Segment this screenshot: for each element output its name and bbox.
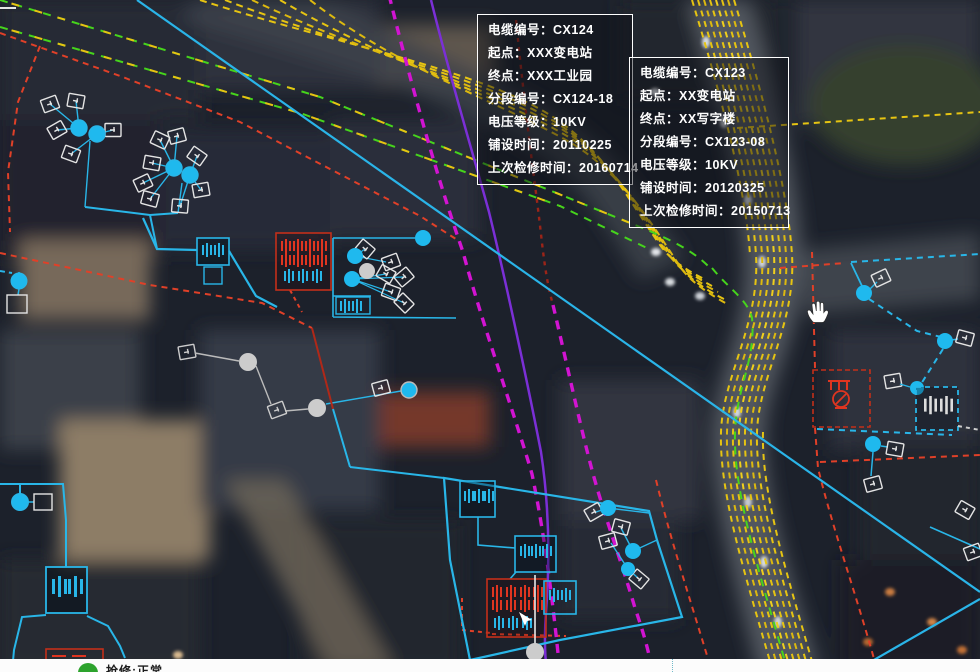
cable-node[interactable] <box>12 494 28 510</box>
info-row: 铺设时间：20110225 <box>488 134 624 157</box>
telemetry-node-gray[interactable] <box>239 353 257 371</box>
cable-node[interactable] <box>344 271 360 287</box>
legend-label: 抢修:正常 <box>106 662 163 672</box>
cable-node[interactable] <box>182 167 198 183</box>
telemetry-node-gray[interactable] <box>308 399 326 417</box>
legend-separator <box>672 659 673 672</box>
info-row: 电压等级：10KV <box>488 111 624 134</box>
status-dot <box>78 663 98 672</box>
info-row: 上次检修时间：20160714 <box>488 157 624 180</box>
cable-node[interactable] <box>621 562 635 576</box>
cable-node[interactable] <box>89 126 105 142</box>
info-row: 铺设时间：20120325 <box>640 177 780 200</box>
info-row: 终点：XX写字楼 <box>640 108 780 131</box>
gis-map-viewport: 电缆编号：CX124 起点：XXX变电站 终点：XXX工业园 分段编号：CX12… <box>0 0 980 672</box>
legend-bar: 抢修:正常 <box>0 659 980 672</box>
cable-info-window-cx124: 电缆编号：CX124 起点：XXX变电站 终点：XXX工业园 分段编号：CX12… <box>477 14 633 185</box>
info-row: 起点：XX变电站 <box>640 85 780 108</box>
cable-node[interactable] <box>625 543 641 559</box>
cable-node[interactable] <box>401 382 417 398</box>
cable-node[interactable] <box>347 248 363 264</box>
info-row: 终点：XXX工业园 <box>488 65 624 88</box>
info-row: 电缆编号：CX123 <box>640 62 780 85</box>
info-row: 上次检修时间：20150713 <box>640 200 780 223</box>
cable-node[interactable] <box>166 160 182 176</box>
cable-node[interactable] <box>937 333 953 349</box>
info-row: 起点：XXX变电站 <box>488 42 624 65</box>
cable-node[interactable] <box>71 120 87 136</box>
info-row: 分段编号：CX123-08 <box>640 131 780 154</box>
cable-info-window-cx123: 电缆编号：CX123 起点：XX变电站 终点：XX写字楼 分段编号：CX123-… <box>629 57 789 228</box>
info-row: 电缆编号：CX124 <box>488 19 624 42</box>
cable-node[interactable] <box>865 436 881 452</box>
info-row: 分段编号：CX124-18 <box>488 88 624 111</box>
telemetry-node-gray[interactable] <box>359 263 375 279</box>
cable-node[interactable] <box>600 500 616 516</box>
info-row: 电压等级：10KV <box>640 154 780 177</box>
cable-node-feeder[interactable] <box>415 230 431 246</box>
